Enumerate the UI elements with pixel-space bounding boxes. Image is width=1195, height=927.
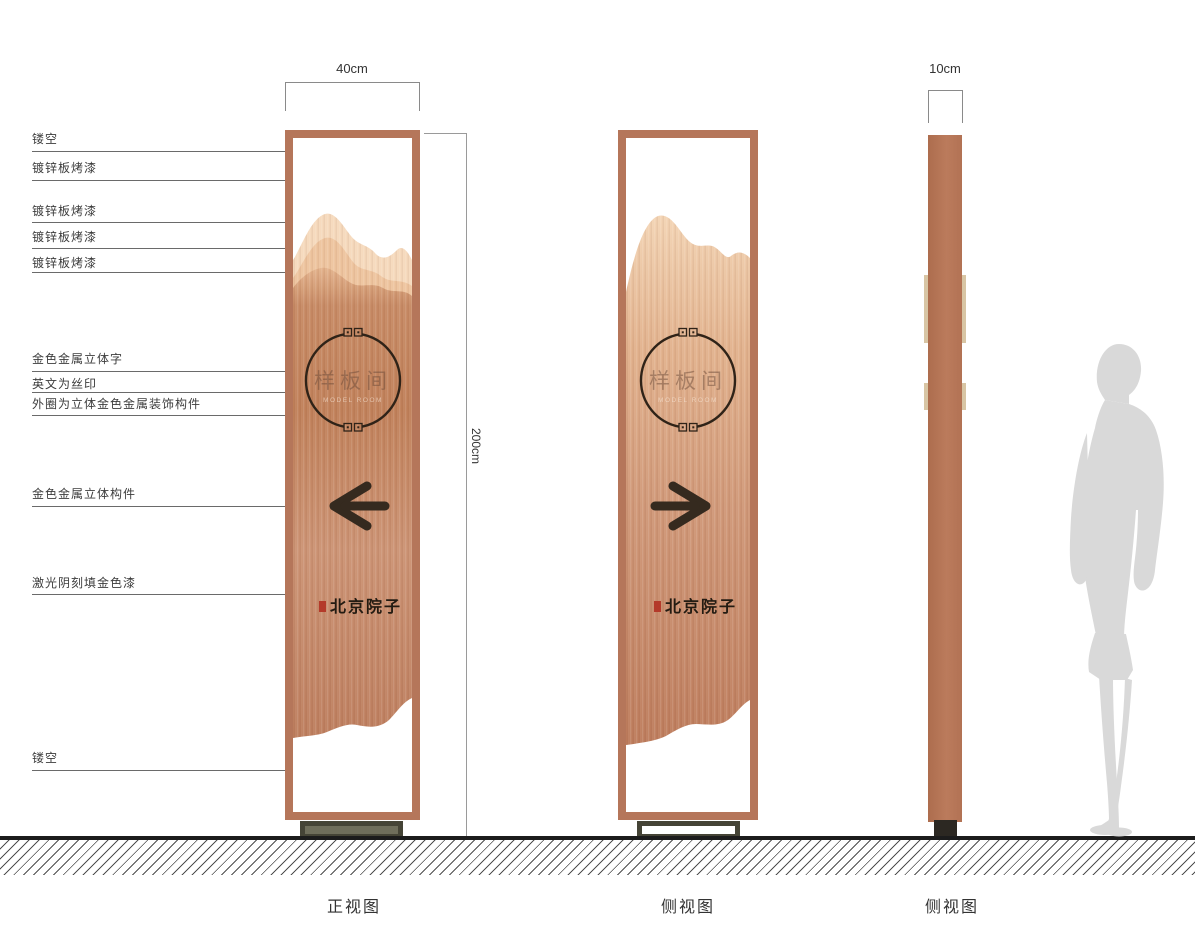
seal-stamp-icon xyxy=(319,601,326,612)
side-width-dimension-label: 10cm xyxy=(929,61,961,76)
annotation-leader-line xyxy=(32,222,323,223)
brand-logo: 北京院子 xyxy=(654,597,737,616)
height-dimension-line xyxy=(466,133,467,836)
height-dimension-label: 200cm xyxy=(469,428,483,464)
silhouette-hips xyxy=(1088,633,1133,680)
view-label-side: 侧视图 xyxy=(661,893,715,917)
annotation-leader-line xyxy=(32,594,300,595)
brand-logo-text: 北京院子 xyxy=(665,597,737,616)
front-width-dimension-bracket xyxy=(285,82,420,111)
annotation-leader-line xyxy=(32,371,325,372)
annotation-label: 镀锌板烤漆 xyxy=(32,254,97,271)
ground-hatch xyxy=(0,840,1195,875)
silhouette-torso xyxy=(1081,400,1164,640)
brand-logo: 北京院子 xyxy=(319,597,402,616)
annotation-leader-line xyxy=(32,770,302,771)
room-name-english-text: MODEL ROOM xyxy=(658,397,718,404)
annotation-label: 英文为丝印 xyxy=(32,375,97,392)
silhouette-arm xyxy=(1070,433,1089,584)
front-width-dimension-label: 40cm xyxy=(336,61,368,76)
annotation-label: 激光阴刻填金色漆 xyxy=(32,574,136,591)
annotation-label: 金色金属立体构件 xyxy=(32,485,136,502)
human-silhouette xyxy=(1035,338,1175,838)
annotation-label: 镀锌板烤漆 xyxy=(32,159,97,176)
front-view-sign: 样板间 MODEL ROOM 北京院子 xyxy=(285,130,420,820)
annotation-label: 镀锌板烤漆 xyxy=(32,228,97,245)
view-label-front: 正视图 xyxy=(327,893,381,917)
annotation-label: 金色金属立体字 xyxy=(32,350,123,367)
annotation-leader-line xyxy=(32,151,306,152)
room-name-text: 样板间 xyxy=(314,370,392,393)
annotation-leader-line xyxy=(32,272,292,273)
room-name-text: 样板间 xyxy=(649,370,727,393)
annotation-leader-line xyxy=(32,180,285,181)
annotation-label: 镂空 xyxy=(32,130,58,147)
drawing-canvas: 镂空镀锌板烤漆镀锌板烤漆镀锌板烤漆镀锌板烤漆金色金属立体字英文为丝印外圈为立体金… xyxy=(0,0,1195,927)
annotation-leader-line xyxy=(32,248,292,249)
seal-stamp-icon xyxy=(654,601,661,612)
side-view-sign: 样板间 MODEL ROOM 北京院子 xyxy=(618,130,758,820)
silhouette-head xyxy=(1097,344,1141,404)
brand-logo-text: 北京院子 xyxy=(330,597,402,616)
view-label-profile: 侧视图 xyxy=(925,893,979,917)
silhouette-foot xyxy=(1106,828,1132,837)
annotation-label: 外圈为立体金色金属装饰构件 xyxy=(32,395,201,412)
side-width-dimension-bracket xyxy=(928,90,963,123)
room-name-english-text: MODEL ROOM xyxy=(323,397,383,404)
annotation-leader-line xyxy=(32,415,317,416)
annotation-label: 镂空 xyxy=(32,749,58,766)
height-dimension-tick xyxy=(424,133,467,134)
annotation-label: 镀锌板烤漆 xyxy=(32,202,97,219)
profile-sign-body xyxy=(928,135,962,822)
side-sign-main-panel xyxy=(626,216,750,745)
